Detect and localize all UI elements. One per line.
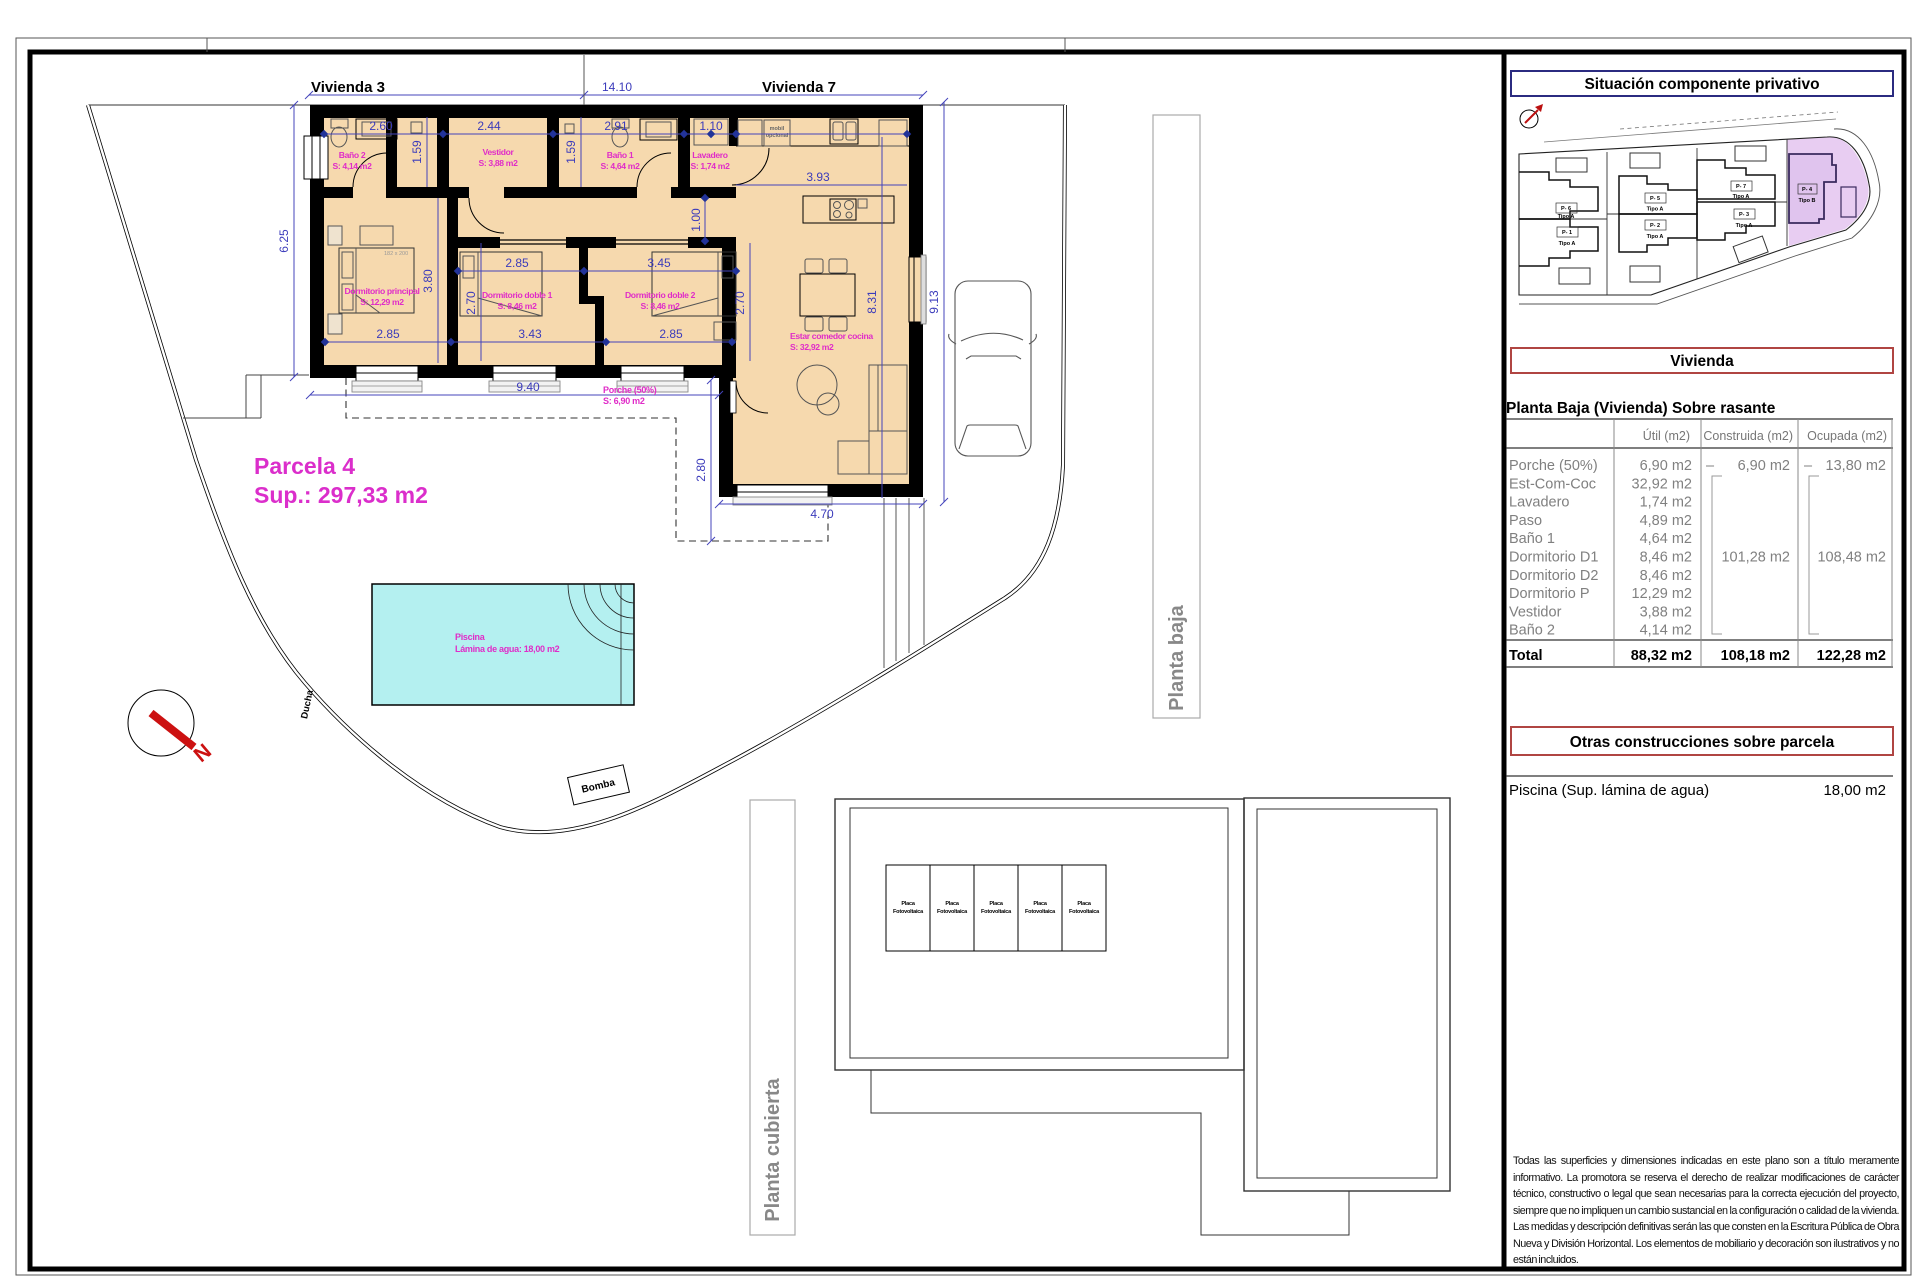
svg-text:8,46 m2: 8,46 m2 xyxy=(1640,550,1692,566)
svg-text:Sup.: 297,33 m2: Sup.: 297,33 m2 xyxy=(254,482,428,508)
svg-text:Dormitorio doble 1: Dormitorio doble 1 xyxy=(482,290,553,300)
svg-text:18,00 m2: 18,00 m2 xyxy=(1823,782,1886,799)
svg-text:Est-Com-Coc: Est-Com-Coc xyxy=(1509,476,1596,492)
svg-text:3.45: 3.45 xyxy=(647,256,671,270)
svg-text:Vestidor: Vestidor xyxy=(482,147,514,157)
svg-text:2.85: 2.85 xyxy=(659,327,683,341)
svg-text:9.13: 9.13 xyxy=(927,290,941,314)
svg-text:4,64 m2: 4,64 m2 xyxy=(1640,531,1692,547)
svg-text:Estar comedor cocina: Estar comedor cocina xyxy=(790,331,873,341)
svg-text:1.10: 1.10 xyxy=(699,119,723,133)
svg-text:Planta baja: Planta baja xyxy=(1166,604,1188,710)
svg-text:Porche (50%): Porche (50%) xyxy=(603,385,657,395)
svg-text:Vivienda: Vivienda xyxy=(1670,353,1734,370)
svg-text:1,74 m2: 1,74 m2 xyxy=(1640,495,1692,511)
svg-text:Baño 2: Baño 2 xyxy=(1509,623,1555,639)
svg-text:Tipo A: Tipo A xyxy=(1647,234,1664,240)
svg-text:Dormitorio D1: Dormitorio D1 xyxy=(1509,550,1598,566)
svg-text:Fotovoltaica: Fotovoltaica xyxy=(937,909,968,915)
svg-text:8,46 m2: 8,46 m2 xyxy=(1640,568,1692,584)
svg-text:Tipo A: Tipo A xyxy=(1558,214,1575,220)
svg-text:Placa: Placa xyxy=(901,901,916,907)
svg-text:S: 8,46 m2: S: 8,46 m2 xyxy=(497,301,537,311)
svg-text:P- 7: P- 7 xyxy=(1736,184,1746,190)
svg-text:P- 6: P- 6 xyxy=(1561,206,1571,212)
svg-text:108,18 m2: 108,18 m2 xyxy=(1721,648,1790,664)
svg-text:Piscina: Piscina xyxy=(455,632,486,642)
svg-text:13,80 m2: 13,80 m2 xyxy=(1826,458,1886,474)
svg-text:Vivienda 3: Vivienda 3 xyxy=(311,79,385,96)
svg-text:S: 4,14 m2: S: 4,14 m2 xyxy=(332,161,372,171)
svg-text:S: 12,29 m2: S: 12,29 m2 xyxy=(360,297,404,307)
svg-text:Baño 1: Baño 1 xyxy=(1509,531,1555,547)
svg-text:6,90 m2: 6,90 m2 xyxy=(1640,458,1692,474)
svg-text:Paso: Paso xyxy=(1509,513,1542,529)
svg-text:Otras construcciones sobre par: Otras construcciones sobre parcela xyxy=(1570,734,1835,751)
svg-text:2.70: 2.70 xyxy=(733,291,747,315)
svg-text:2.80: 2.80 xyxy=(694,458,708,482)
svg-text:Vivienda 7: Vivienda 7 xyxy=(762,79,836,96)
svg-text:Útil (m2): Útil (m2) xyxy=(1643,428,1690,443)
svg-text:122,28 m2: 122,28 m2 xyxy=(1817,648,1886,664)
svg-text:9.40: 9.40 xyxy=(516,380,540,394)
svg-text:S: 1,74 m2: S: 1,74 m2 xyxy=(690,161,730,171)
svg-text:S: 4,64 m2: S: 4,64 m2 xyxy=(600,161,640,171)
svg-text:Tipo B: Tipo B xyxy=(1798,198,1815,204)
svg-text:4,89 m2: 4,89 m2 xyxy=(1640,513,1692,529)
svg-text:1.00: 1.00 xyxy=(689,208,703,232)
svg-text:Piscina (Sup. lámina de agua): Piscina (Sup. lámina de agua) xyxy=(1509,782,1709,799)
svg-text:–: – xyxy=(1804,458,1813,474)
svg-text:3.43: 3.43 xyxy=(518,327,542,341)
svg-text:2.85: 2.85 xyxy=(505,256,529,270)
svg-text:8.31: 8.31 xyxy=(865,290,879,314)
svg-text:Lavadero: Lavadero xyxy=(1509,495,1569,511)
svg-text:Lavadero: Lavadero xyxy=(692,150,728,160)
svg-text:108,48 m2: 108,48 m2 xyxy=(1817,550,1886,566)
svg-text:Tipo A: Tipo A xyxy=(1559,241,1576,247)
svg-text:Placa: Placa xyxy=(1033,901,1048,907)
svg-text:Vestidor: Vestidor xyxy=(1509,604,1562,620)
svg-text:Placa: Placa xyxy=(1077,901,1092,907)
svg-text:P- 4: P- 4 xyxy=(1802,187,1813,193)
svg-text:2.85: 2.85 xyxy=(376,327,400,341)
svg-text:Ocupada (m2): Ocupada (m2) xyxy=(1807,429,1887,443)
svg-text:32,92 m2: 32,92 m2 xyxy=(1632,476,1692,492)
svg-text:Parcela 4: Parcela 4 xyxy=(254,453,355,479)
svg-text:Lámina de agua: 18,00 m2: Lámina de agua: 18,00 m2 xyxy=(455,644,560,654)
svg-text:Placa: Placa xyxy=(989,901,1004,907)
svg-text:6.25: 6.25 xyxy=(277,229,291,253)
svg-text:4.70: 4.70 xyxy=(810,507,834,521)
svg-text:S: 3,88 m2: S: 3,88 m2 xyxy=(478,158,518,168)
svg-text:2.60: 2.60 xyxy=(369,119,393,133)
svg-text:101,28 m2: 101,28 m2 xyxy=(1721,550,1790,566)
svg-text:S: 6,90 m2: S: 6,90 m2 xyxy=(603,396,645,406)
svg-text:Planta Baja (Vivienda) Sobre r: Planta Baja (Vivienda) Sobre rasante xyxy=(1506,400,1776,417)
svg-text:S: 8,46 m2: S: 8,46 m2 xyxy=(640,301,680,311)
svg-text:mobil: mobil xyxy=(770,126,785,132)
svg-text:P- 2: P- 2 xyxy=(1650,223,1660,229)
svg-text:1.59: 1.59 xyxy=(564,140,578,164)
svg-text:3.93: 3.93 xyxy=(806,170,830,184)
svg-text:3.80: 3.80 xyxy=(421,269,435,293)
svg-text:P- 3: P- 3 xyxy=(1739,212,1749,218)
svg-text:–: – xyxy=(1706,458,1715,474)
svg-text:Tipo A: Tipo A xyxy=(1736,223,1753,229)
svg-text:Dormitorio P: Dormitorio P xyxy=(1509,586,1590,602)
svg-text:4,14 m2: 4,14 m2 xyxy=(1640,623,1692,639)
svg-text:Dormitorio principal: Dormitorio principal xyxy=(344,286,419,296)
svg-text:14.10: 14.10 xyxy=(602,80,632,94)
svg-text:3,88 m2: 3,88 m2 xyxy=(1640,604,1692,620)
svg-text:Fotovoltaica: Fotovoltaica xyxy=(893,909,924,915)
svg-text:6,90 m2: 6,90 m2 xyxy=(1738,458,1790,474)
svg-text:Porche (50%): Porche (50%) xyxy=(1509,458,1598,474)
svg-text:2.44: 2.44 xyxy=(477,119,501,133)
svg-text:Dormitorio D2: Dormitorio D2 xyxy=(1509,568,1598,584)
svg-text:Construida (m2): Construida (m2) xyxy=(1703,429,1793,443)
svg-text:Planta cubierta: Planta cubierta xyxy=(762,1077,784,1221)
svg-text:P- 5: P- 5 xyxy=(1650,196,1660,202)
svg-text:Total: Total xyxy=(1509,648,1543,664)
svg-text:P- 1: P- 1 xyxy=(1562,230,1572,236)
svg-text:Tipo A: Tipo A xyxy=(1733,194,1750,200)
svg-text:Situación componente privativo: Situación componente privativo xyxy=(1584,76,1819,93)
svg-text:2.91: 2.91 xyxy=(604,119,628,133)
svg-text:182 x 200: 182 x 200 xyxy=(384,251,408,257)
svg-text:Fotovoltaica: Fotovoltaica xyxy=(1069,909,1100,915)
svg-text:Dormitorio doble 2: Dormitorio doble 2 xyxy=(625,290,696,300)
svg-text:Ducha: Ducha xyxy=(299,688,316,719)
svg-text:S: 32,92 m2: S: 32,92 m2 xyxy=(790,342,834,352)
svg-text:Baño 2: Baño 2 xyxy=(339,150,366,160)
svg-text:12,29 m2: 12,29 m2 xyxy=(1632,586,1692,602)
svg-text:Baño 1: Baño 1 xyxy=(607,150,634,160)
svg-text:1.59: 1.59 xyxy=(410,140,424,164)
svg-text:Tipo A: Tipo A xyxy=(1647,207,1664,213)
svg-text:88,32 m2: 88,32 m2 xyxy=(1631,648,1692,664)
svg-text:Placa: Placa xyxy=(945,901,960,907)
svg-text:Fotovoltaica: Fotovoltaica xyxy=(981,909,1012,915)
svg-text:Fotovoltaica: Fotovoltaica xyxy=(1025,909,1056,915)
svg-text:2.70: 2.70 xyxy=(464,291,478,315)
